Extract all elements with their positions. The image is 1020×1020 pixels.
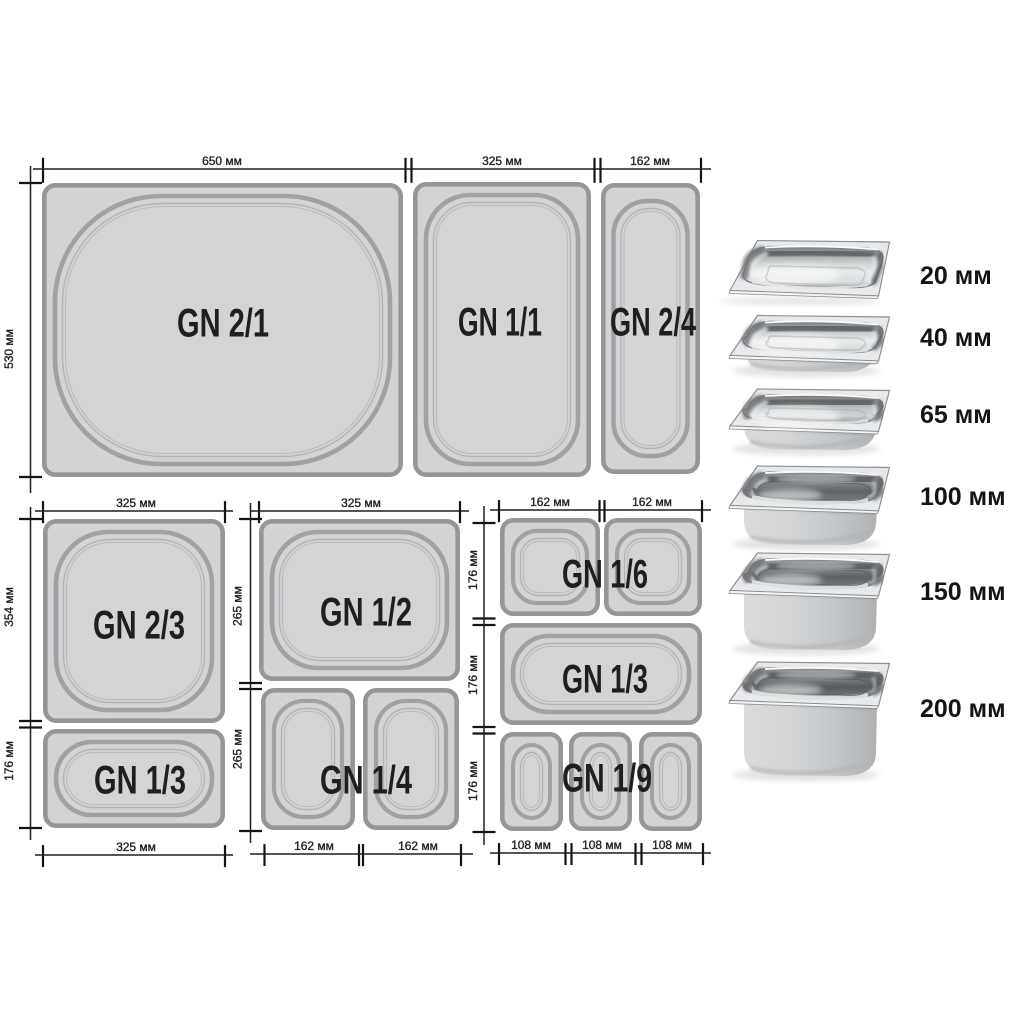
svg-text:650 мм: 650 мм — [202, 154, 242, 168]
svg-text:200 мм: 200 мм — [920, 695, 1006, 723]
svg-text:GN 1/1: GN 1/1 — [458, 301, 542, 345]
svg-text:325 мм: 325 мм — [116, 496, 156, 510]
svg-text:GN 2/3: GN 2/3 — [93, 604, 185, 648]
svg-text:GN 2/4: GN 2/4 — [610, 301, 697, 345]
svg-text:GN 1/2: GN 1/2 — [320, 591, 412, 635]
svg-text:GN 2/1: GN 2/1 — [177, 302, 269, 346]
svg-text:530 мм: 530 мм — [2, 329, 16, 369]
svg-text:176 мм: 176 мм — [466, 761, 480, 801]
svg-text:176 мм: 176 мм — [466, 655, 480, 695]
svg-text:162 мм: 162 мм — [398, 839, 438, 853]
svg-text:325 мм: 325 мм — [482, 154, 522, 168]
svg-text:40 мм: 40 мм — [920, 324, 992, 352]
svg-text:20 мм: 20 мм — [920, 262, 992, 290]
svg-text:354 мм: 354 мм — [2, 587, 16, 627]
svg-text:108 мм: 108 мм — [652, 838, 692, 852]
svg-text:GN 1/4: GN 1/4 — [320, 759, 413, 803]
svg-text:GN 1/6: GN 1/6 — [562, 553, 648, 597]
svg-text:108 мм: 108 мм — [511, 838, 551, 852]
svg-text:325 мм: 325 мм — [116, 840, 156, 854]
svg-text:GN 1/3: GN 1/3 — [562, 658, 648, 702]
svg-text:176 мм: 176 мм — [2, 741, 16, 781]
svg-text:162 мм: 162 мм — [630, 154, 670, 168]
svg-text:176 мм: 176 мм — [466, 550, 480, 590]
svg-text:108 мм: 108 мм — [582, 838, 622, 852]
svg-text:GN 1/9: GN 1/9 — [562, 757, 652, 801]
svg-text:65 мм: 65 мм — [920, 401, 992, 429]
svg-text:162 мм: 162 мм — [632, 495, 672, 509]
svg-text:100 мм: 100 мм — [920, 483, 1006, 511]
svg-text:162 мм: 162 мм — [294, 839, 334, 853]
svg-text:150 мм: 150 мм — [920, 578, 1006, 606]
svg-text:162 мм: 162 мм — [530, 495, 570, 509]
svg-text:325 мм: 325 мм — [341, 496, 381, 510]
svg-text:265 мм: 265 мм — [231, 729, 245, 769]
svg-text:GN 1/3: GN 1/3 — [94, 759, 186, 803]
svg-text:265 мм: 265 мм — [231, 586, 245, 626]
